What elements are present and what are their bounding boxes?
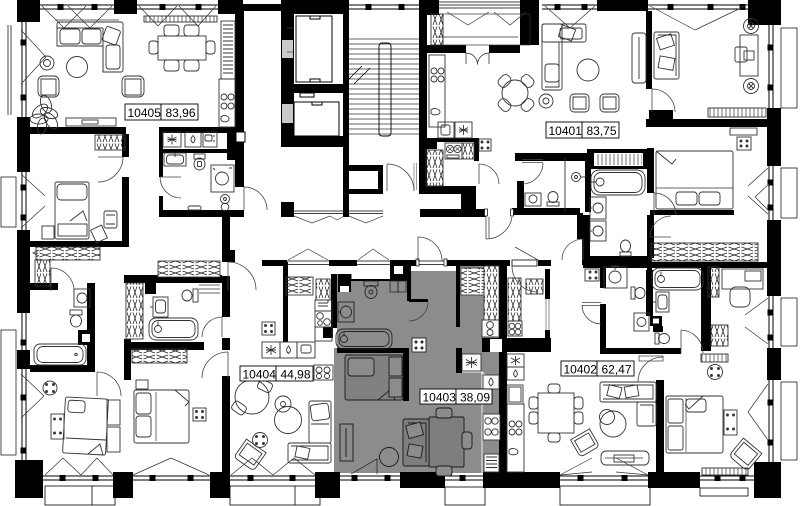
svg-text:10403: 10403 [423,391,457,405]
svg-text:10402: 10402 [564,363,598,377]
svg-text:83,75: 83,75 [587,124,617,138]
svg-text:44,98: 44,98 [281,368,311,382]
svg-text:38,09: 38,09 [460,391,490,405]
svg-text:62,47: 62,47 [602,363,632,377]
svg-text:10404: 10404 [243,368,277,382]
svg-text:10405: 10405 [128,106,162,120]
svg-text:83,96: 83,96 [166,106,196,120]
svg-text:10401: 10401 [549,124,583,138]
